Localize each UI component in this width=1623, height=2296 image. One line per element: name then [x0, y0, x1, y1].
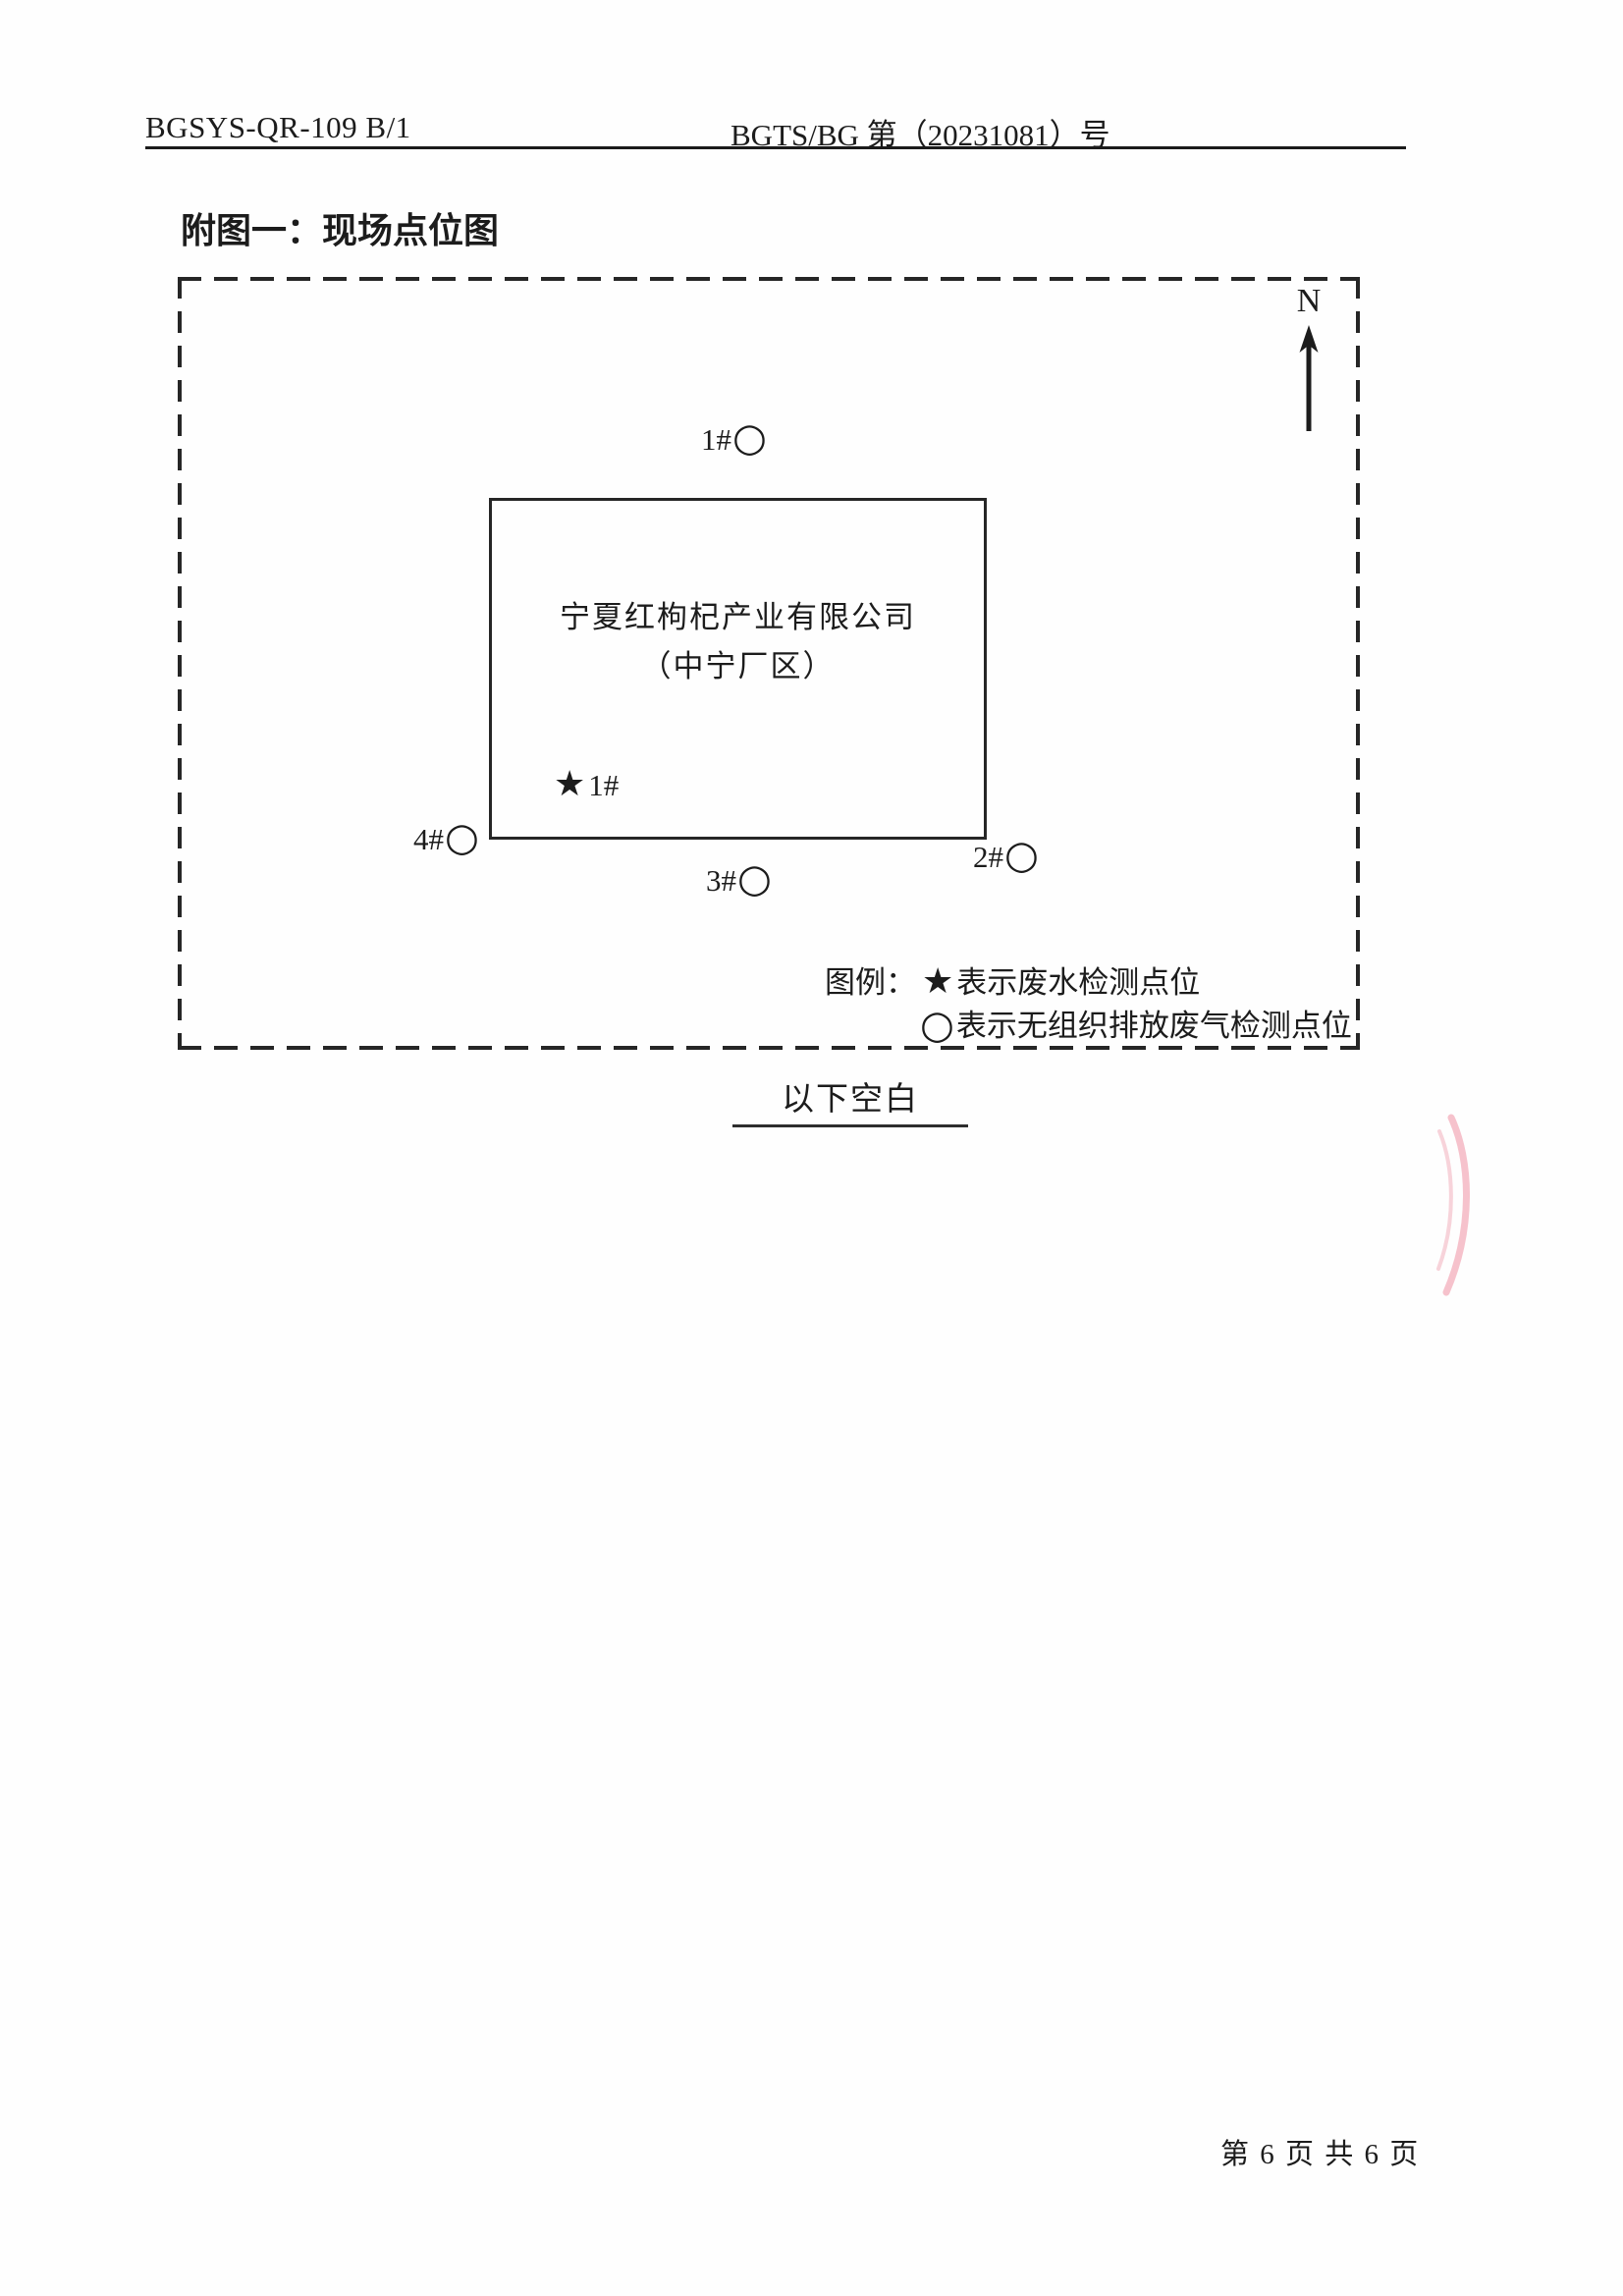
circle-symbol: ○ — [920, 1011, 954, 1041]
legend-gas-entry: ○表示无组织排放废气检测点位 — [916, 1005, 1352, 1048]
legend-wastewater-entry: ★表示废水检测点位 — [916, 961, 1352, 1005]
company-site: （中宁厂区） — [492, 642, 984, 691]
page-number: 第 6 页 共 6 页 — [1220, 2131, 1420, 2172]
north-arrow-icon — [1296, 323, 1322, 433]
header-doc-code: BGSYS-QR-109 B/1 — [145, 110, 411, 145]
north-label: N — [1297, 283, 1322, 319]
company-name: 宁夏红枸杞产业有限公司 — [492, 593, 984, 642]
point-label: 4# — [413, 822, 444, 857]
point-label: 1# — [588, 768, 619, 803]
stamp-edge-mark — [1426, 1106, 1485, 1302]
legend-wastewater-text: 表示废水检测点位 — [956, 961, 1200, 1005]
gas-point-3: 3#○ — [706, 863, 772, 899]
circle-symbol: ○ — [1004, 841, 1039, 871]
factory-boundary: 宁夏红枸杞产业有限公司 （中宁厂区） ★1# — [489, 498, 987, 840]
star-symbol: ★ — [554, 769, 585, 799]
site-map-frame: N 1#○ 宁夏红枸杞产业有限公司 （中宁厂区） ★1# 4#○ 2 — [178, 277, 1360, 1050]
map-legend: 图例： ★表示废水检测点位 ○表示无组织排放废气检测点位 — [825, 961, 1352, 1048]
legend-title: 图例： — [825, 961, 916, 1005]
gas-point-1: 1#○ — [701, 422, 767, 458]
point-label: 2# — [973, 840, 1003, 875]
point-label: 1# — [701, 422, 731, 458]
wastewater-point-1: ★1# — [554, 768, 619, 803]
north-compass: N — [1296, 283, 1322, 433]
below-blank-note: 以下空白 — [732, 1072, 968, 1127]
gas-point-2: 2#○ — [973, 840, 1039, 875]
circle-symbol: ○ — [445, 823, 479, 853]
page-title: 附图一：现场点位图 — [181, 202, 499, 253]
legend-lines: ★表示废水检测点位 ○表示无组织排放废气检测点位 — [916, 961, 1352, 1048]
circle-symbol: ○ — [732, 423, 767, 454]
document-page: BGSYS-QR-109 B/1 BGTS/BG 第（20231081）号 附图… — [0, 0, 1623, 2296]
star-symbol: ★ — [922, 966, 953, 997]
circle-symbol: ○ — [737, 864, 772, 895]
legend-gas-text: 表示无组织排放废气检测点位 — [956, 1005, 1352, 1048]
point-label: 3# — [706, 863, 736, 899]
header-divider — [145, 146, 1406, 149]
gas-point-4: 4#○ — [413, 822, 479, 857]
company-name-block: 宁夏红枸杞产业有限公司 （中宁厂区） — [492, 593, 984, 691]
